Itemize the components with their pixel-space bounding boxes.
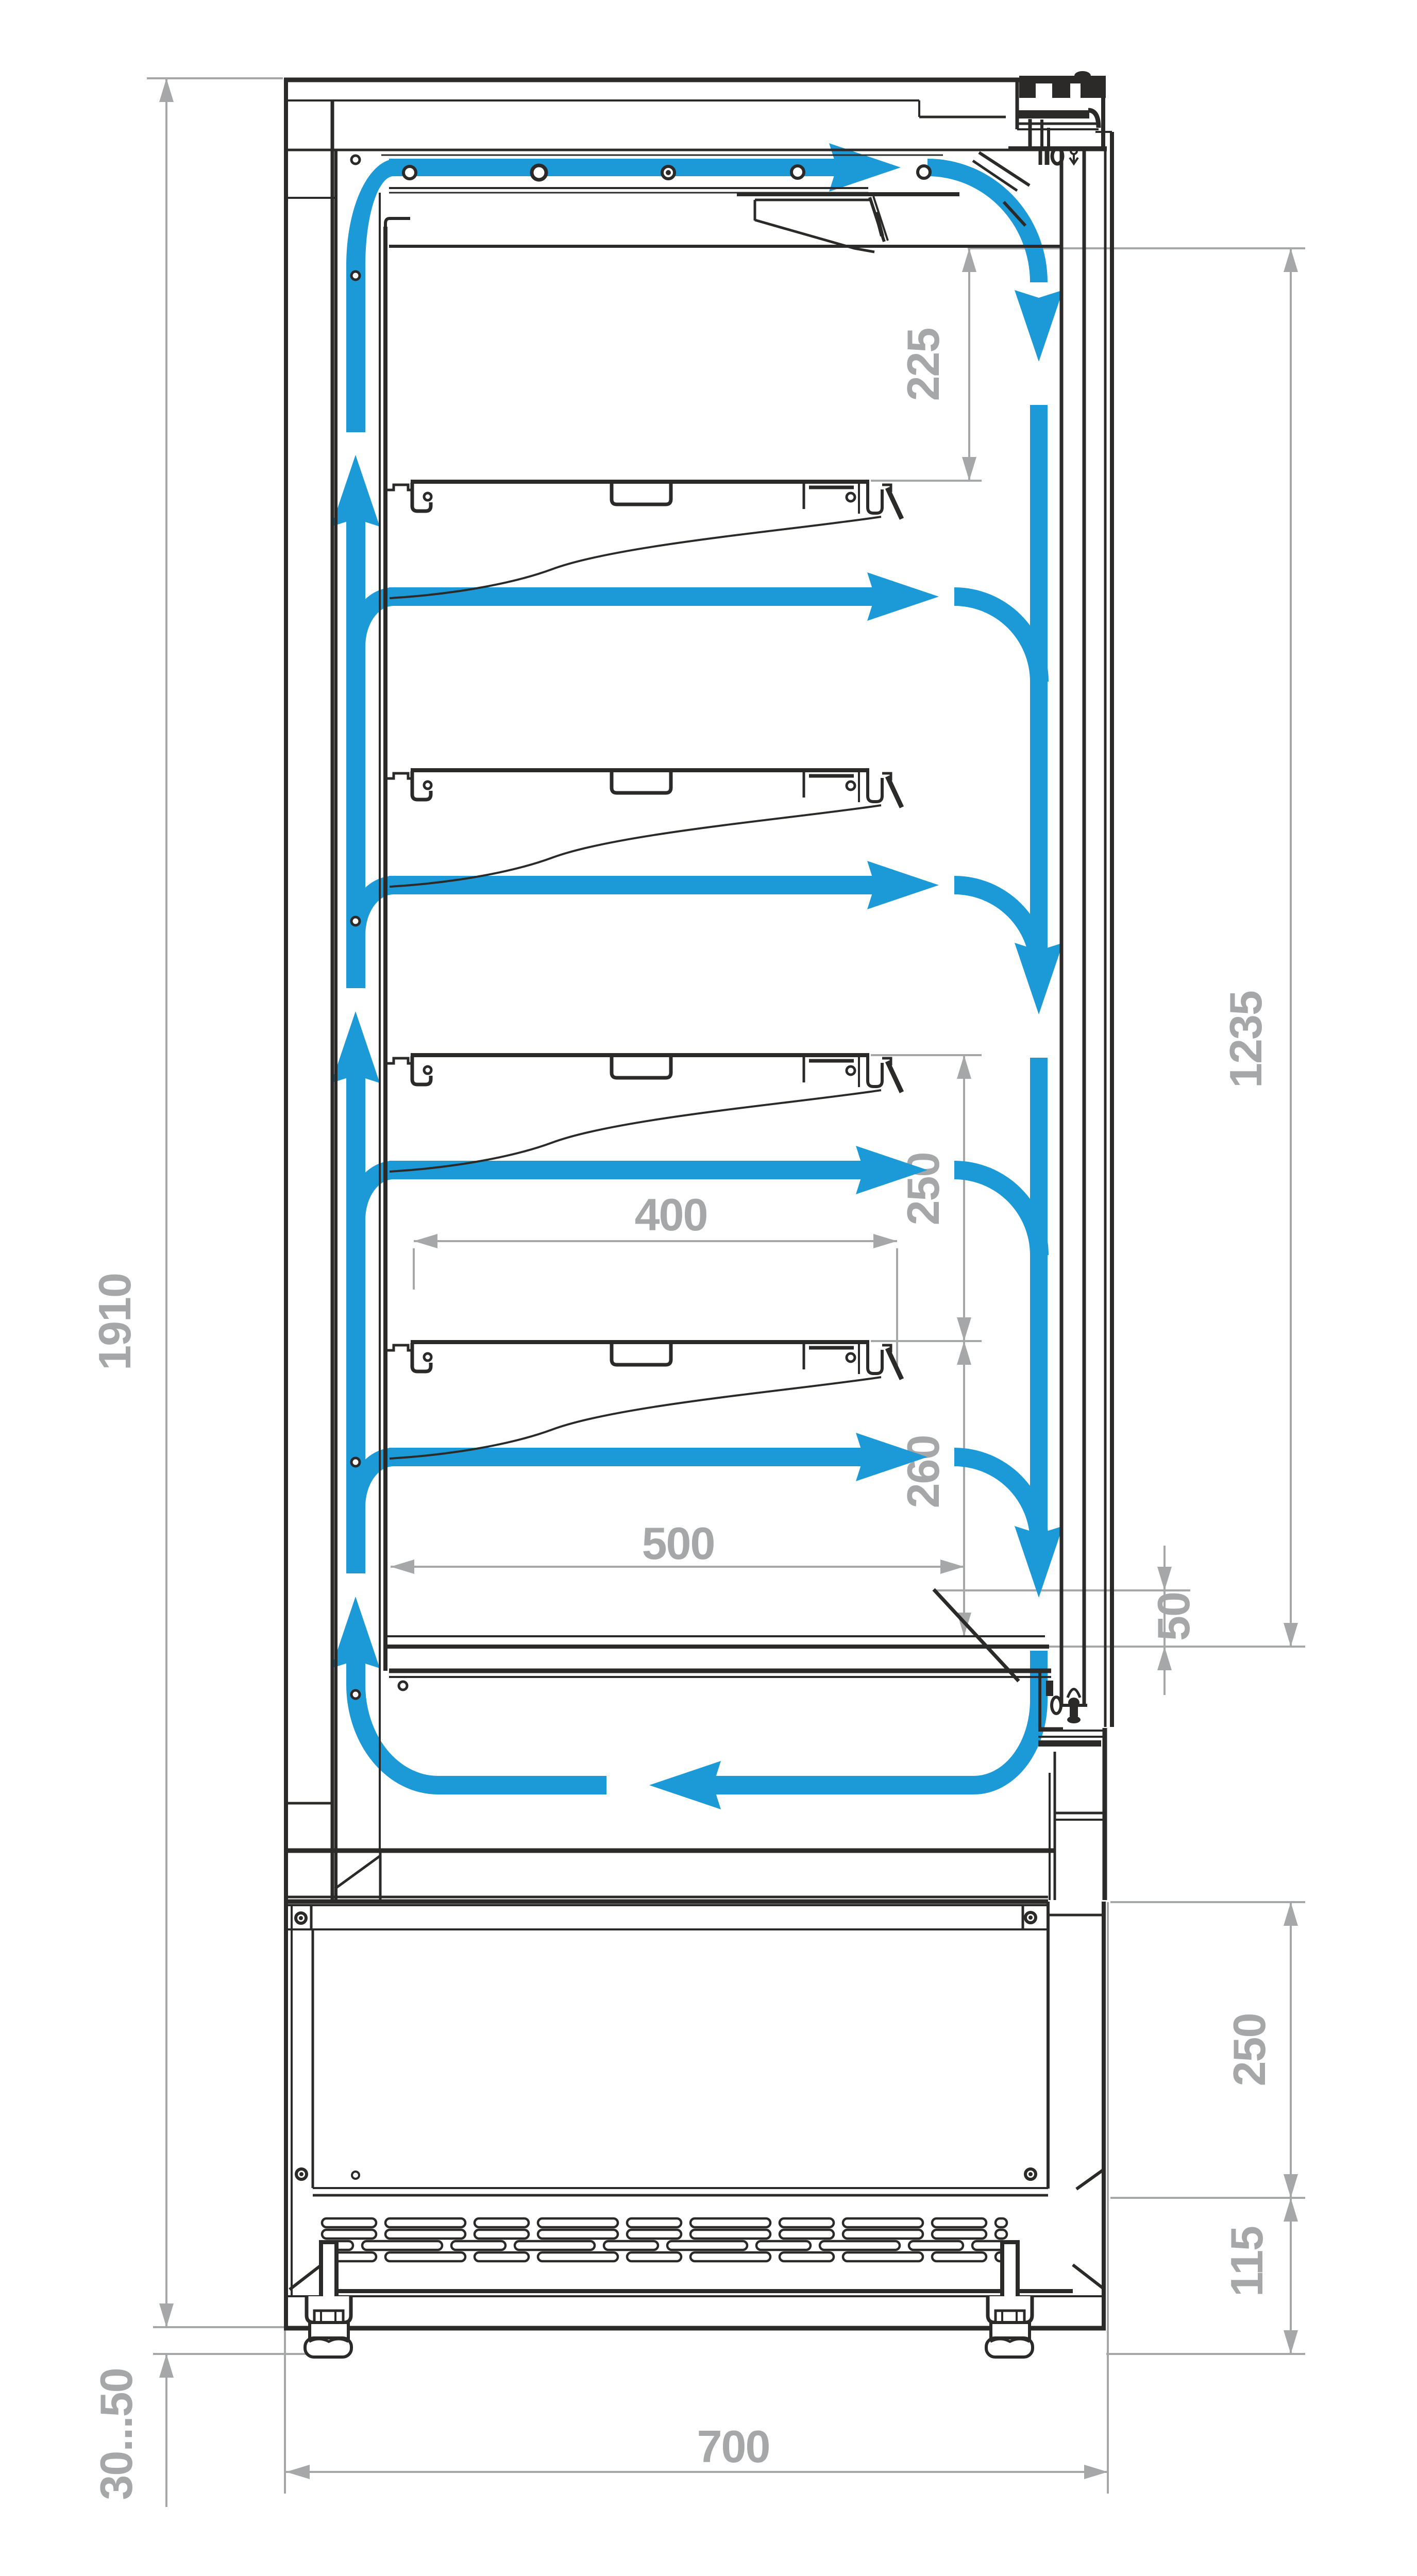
svg-text:50: 50 (1148, 1592, 1199, 1641)
svg-text:250: 250 (1224, 2014, 1275, 2087)
svg-text:700: 700 (697, 2421, 770, 2472)
svg-text:30...50: 30...50 (91, 2368, 142, 2500)
svg-text:260: 260 (898, 1436, 949, 1509)
svg-text:1910: 1910 (89, 1274, 140, 1370)
svg-text:1235: 1235 (1220, 991, 1271, 1088)
svg-text:115: 115 (1221, 2227, 1272, 2297)
svg-text:500: 500 (642, 1518, 715, 1569)
svg-text:400: 400 (635, 1189, 707, 1240)
svg-text:225: 225 (898, 329, 949, 401)
